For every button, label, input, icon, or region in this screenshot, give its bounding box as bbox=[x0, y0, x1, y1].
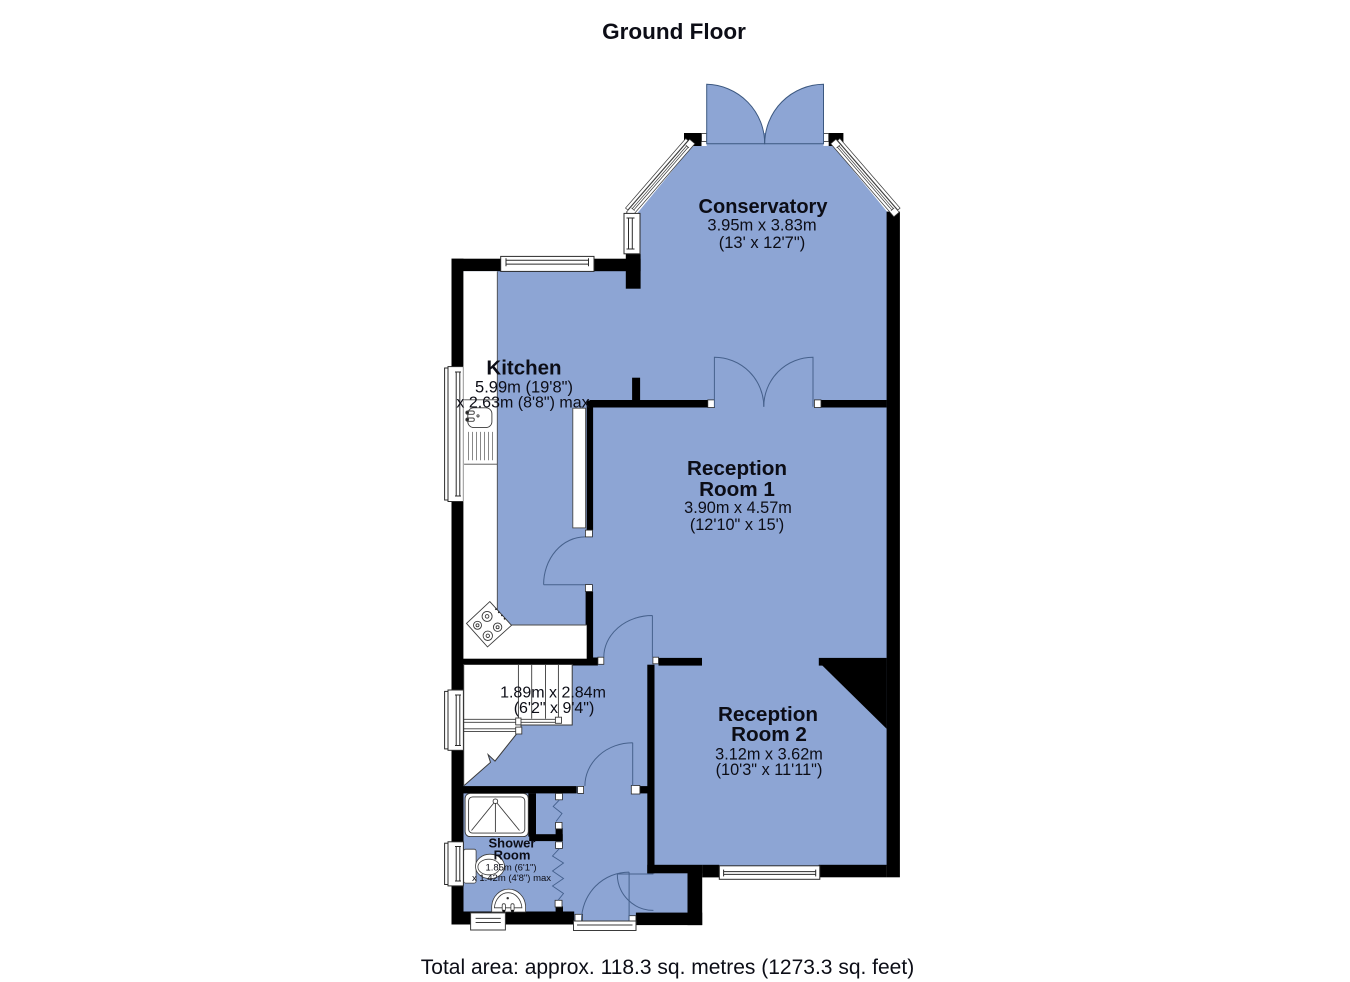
svg-text:(12'10" x 15'): (12'10" x 15') bbox=[690, 516, 784, 534]
svg-text:Conservatory: Conservatory bbox=[699, 196, 829, 218]
svg-text:Total area: approx. 118.3 sq.: Total area: approx. 118.3 sq. metres (12… bbox=[421, 956, 914, 979]
svg-text:Ground Floor: Ground Floor bbox=[602, 19, 746, 44]
svg-text:(13' x 12'7"): (13' x 12'7") bbox=[719, 234, 805, 252]
svg-text:3.90m x 4.57m: 3.90m x 4.57m bbox=[684, 499, 792, 517]
svg-text:Kitchen: Kitchen bbox=[486, 357, 561, 380]
svg-text:1.85m (6'1"): 1.85m (6'1") bbox=[485, 863, 536, 874]
svg-text:(10'3" x 11'11"): (10'3" x 11'11") bbox=[716, 761, 823, 779]
svg-text:Reception: Reception bbox=[687, 457, 787, 480]
svg-text:1.89m x 2.84m: 1.89m x 2.84m bbox=[500, 685, 606, 702]
svg-text:Room 2: Room 2 bbox=[731, 723, 807, 746]
svg-text:3.95m x 3.83m: 3.95m x 3.83m bbox=[707, 217, 816, 235]
svg-text:x 2.63m (8'8") max: x 2.63m (8'8") max bbox=[456, 395, 589, 412]
svg-text:(6'2" x 9'4"): (6'2" x 9'4") bbox=[514, 700, 595, 717]
svg-text:x 1.42m (4'8") max: x 1.42m (4'8") max bbox=[472, 873, 551, 884]
svg-text:Room 1: Room 1 bbox=[699, 478, 775, 501]
svg-text:Room: Room bbox=[494, 848, 531, 863]
